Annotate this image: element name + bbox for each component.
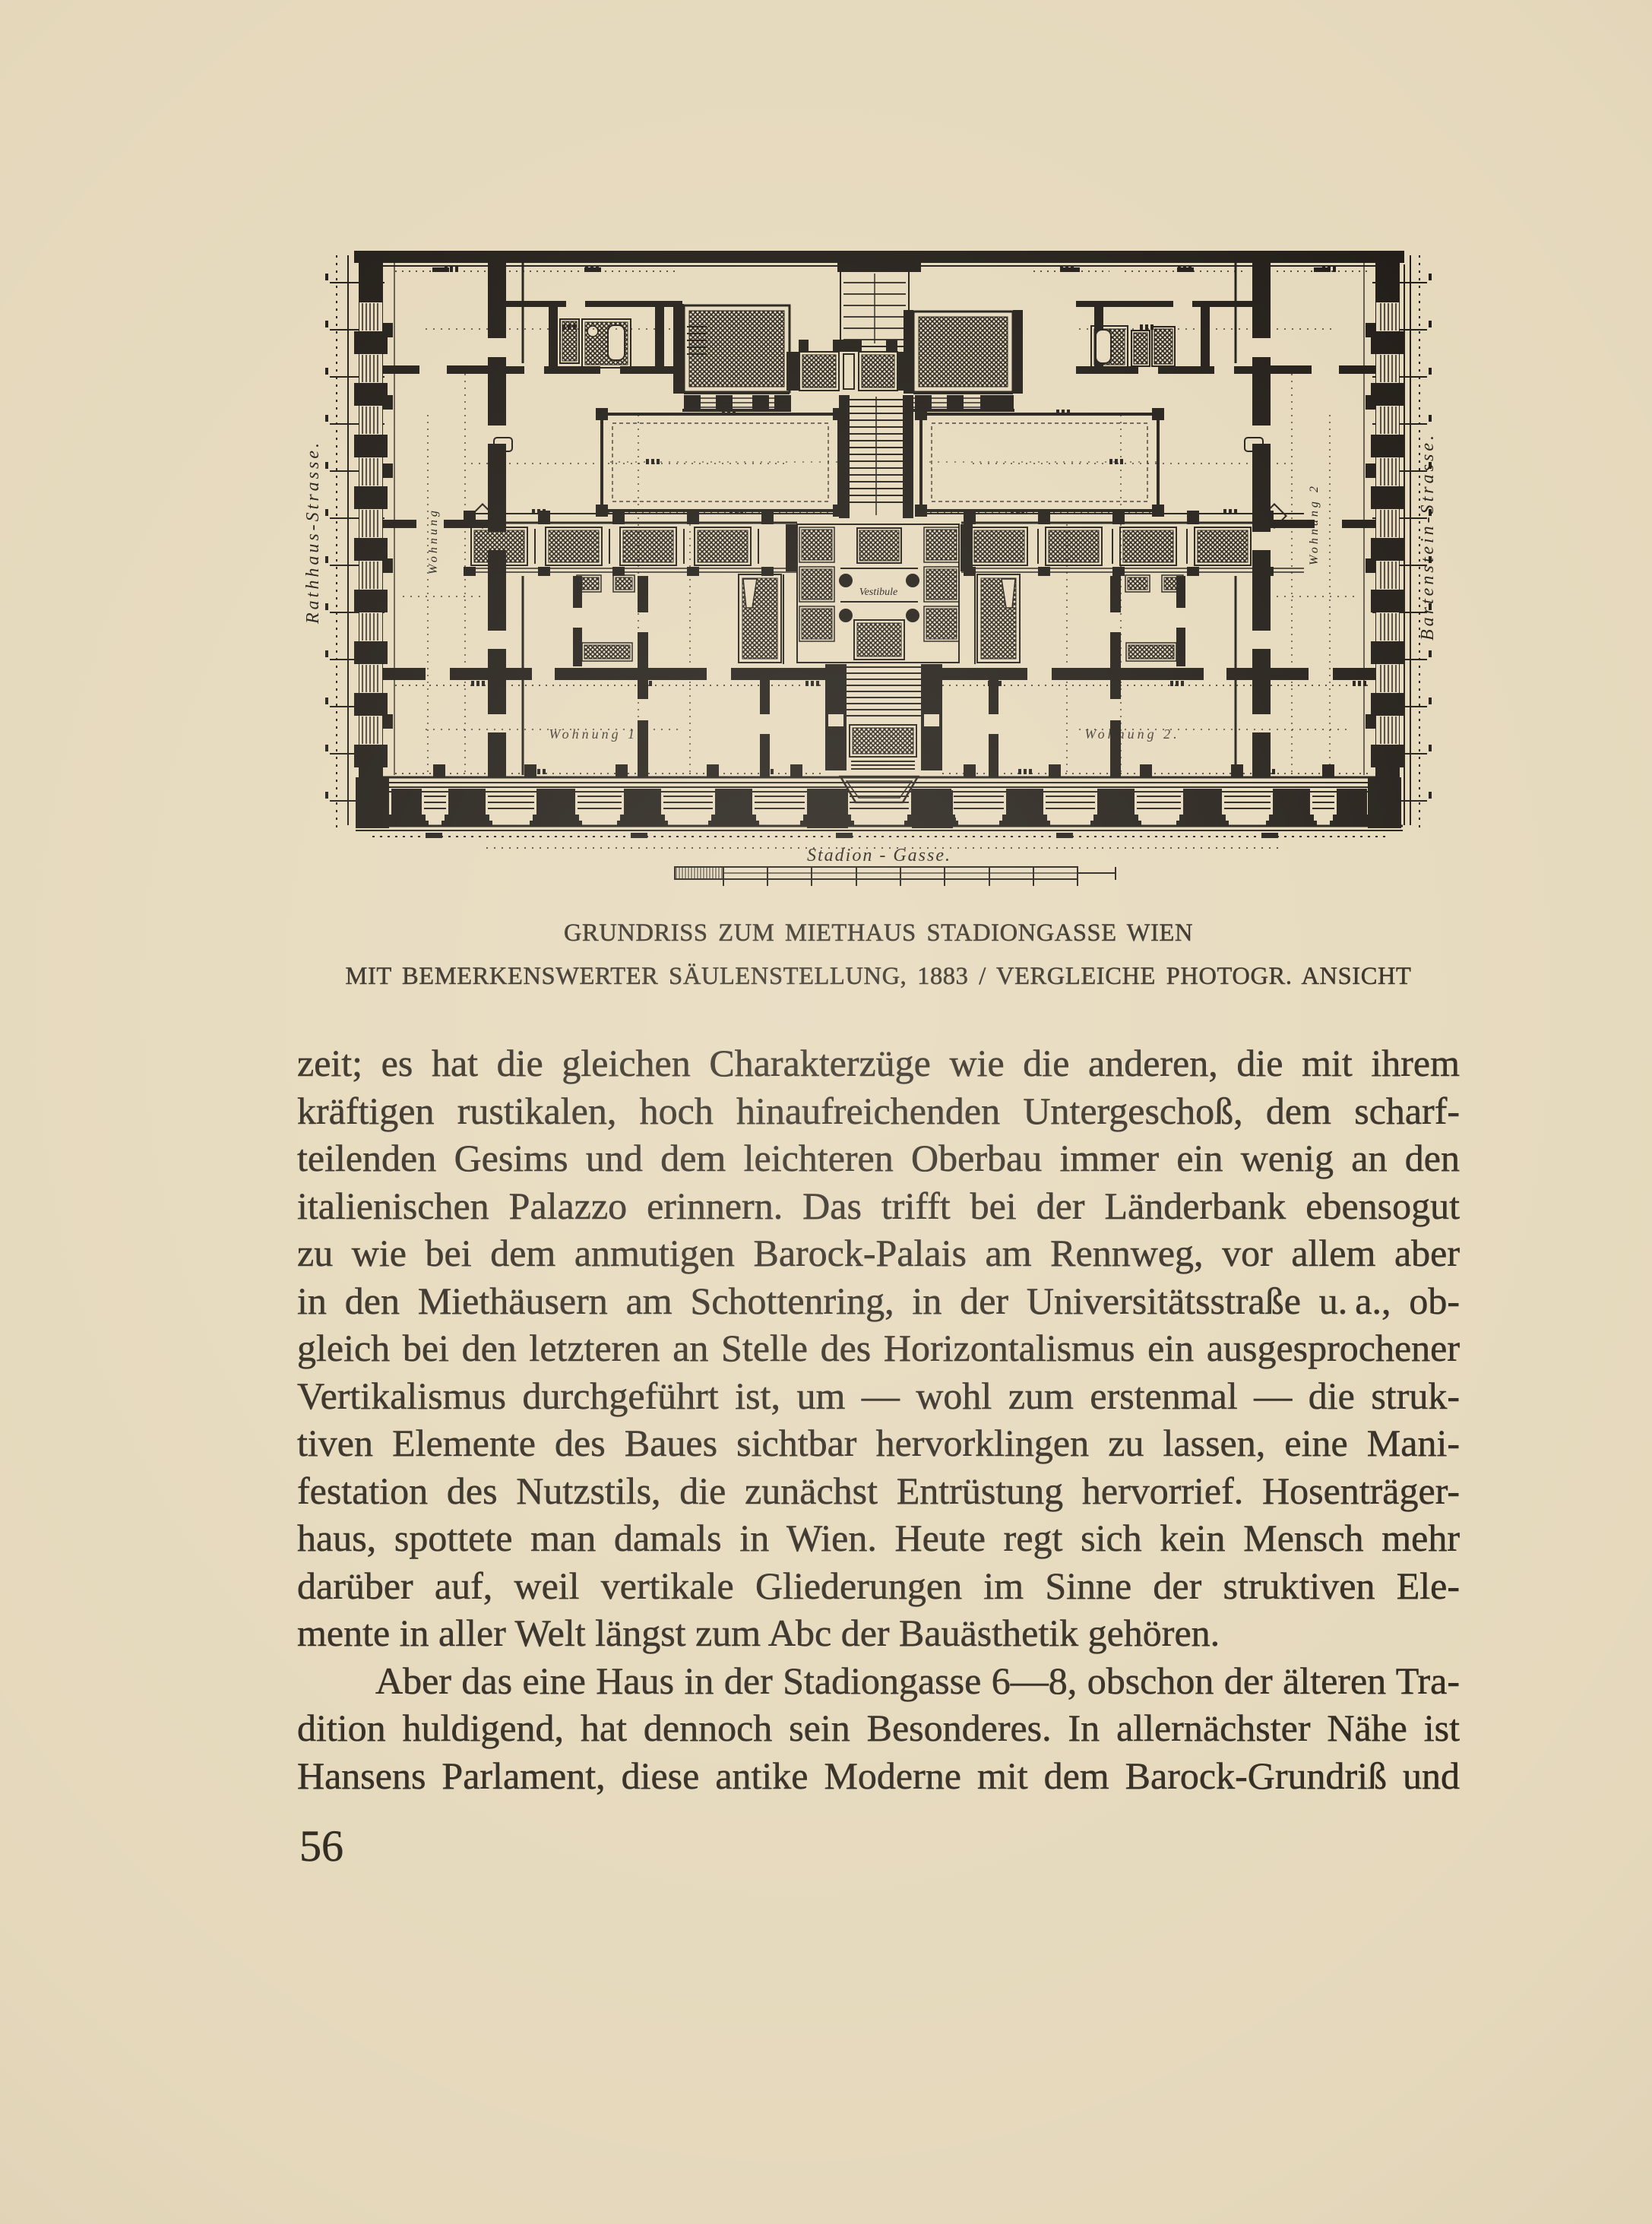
svg-text:Wohnung 2.: Wohnung 2.: [1084, 726, 1179, 742]
svg-text:Wohnung 2: Wohnung 2: [1308, 483, 1321, 565]
svg-text:Vestibule: Vestibule: [859, 587, 898, 598]
svg-text:Bartenstein-Strasse.: Bartenstein-Strasse.: [1418, 432, 1438, 641]
svg-text:Wohnung 1.: Wohnung 1.: [549, 726, 644, 742]
svg-text:Stadion - Gasse.: Stadion - Gasse.: [807, 846, 951, 865]
svg-text:Wohnung: Wohnung: [427, 508, 440, 574]
svg-text:Rathhaus-Strasse.: Rathhaus-Strasse.: [303, 440, 323, 625]
